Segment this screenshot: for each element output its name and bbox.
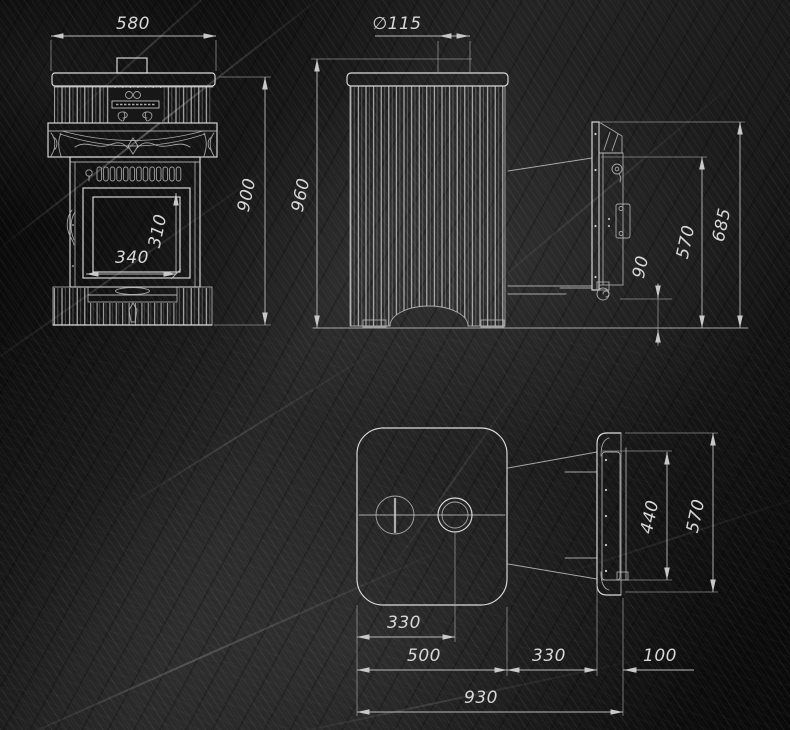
dim-chimney-diameter-label: ∅115 bbox=[372, 14, 421, 34]
dim-plan-body-depth-label: 500 bbox=[407, 646, 441, 666]
side-view: ∅115 960 685 570 bbox=[288, 14, 748, 346]
dim-front-width-label: 580 bbox=[116, 14, 150, 34]
dim-door-height: 310 bbox=[145, 193, 181, 279]
door-handle-knob bbox=[612, 164, 622, 174]
dim-opening-top-height: 570 bbox=[601, 157, 707, 328]
dim-plan-door-outer: 570 bbox=[625, 433, 718, 592]
front-air-vents bbox=[86, 167, 181, 181]
door-mount-flange bbox=[592, 122, 599, 290]
tunnel-top bbox=[508, 158, 592, 171]
dim-plan-total-depth-label: 930 bbox=[464, 688, 498, 708]
mantel-corner-left bbox=[51, 133, 61, 156]
dim-opening-bottom-height-label: 90 bbox=[629, 254, 653, 280]
plan-door-inner bbox=[602, 452, 620, 580]
plan-tunnel-top bbox=[508, 452, 597, 468]
door-top-glass bbox=[599, 122, 622, 153]
front-door-handle bbox=[67, 210, 75, 245]
dim-side-height-label: 960 bbox=[288, 176, 315, 213]
dim-plan-door-offset-label: 100 bbox=[643, 646, 677, 666]
front-top-plate bbox=[52, 73, 215, 86]
dim-plan-door-inner-label: 440 bbox=[637, 498, 664, 535]
technical-drawing: 580 900 340 310 bbox=[0, 0, 790, 730]
plan-door bbox=[597, 433, 628, 595]
dim-chimney-diameter: ∅115 bbox=[372, 14, 470, 72]
dim-door-width: 340 bbox=[86, 248, 176, 274]
mantel-corner-right bbox=[204, 133, 214, 156]
side-top-plate bbox=[347, 73, 508, 86]
plan-tunnel-bottom bbox=[508, 564, 597, 579]
dim-opening-bottom-height: 90 bbox=[620, 254, 672, 346]
dim-front-height: 900 bbox=[214, 77, 271, 325]
dim-plan-chimney-offset: 330 bbox=[357, 533, 455, 642]
dim-plan-total-depth: 930 bbox=[357, 688, 623, 712]
ash-dish bbox=[116, 288, 150, 295]
blueprint-canvas: 580 900 340 310 bbox=[0, 0, 790, 730]
front-view: 580 900 340 310 bbox=[48, 14, 271, 325]
front-mantel bbox=[48, 123, 217, 157]
dim-plan-tunnel-length-label: 330 bbox=[532, 646, 566, 666]
dim-opening-top-height-label: 570 bbox=[673, 223, 700, 260]
brand-emblem bbox=[110, 88, 162, 123]
brand-nameplate bbox=[112, 101, 159, 108]
dim-front-height-label: 900 bbox=[234, 176, 261, 213]
dim-door-height-label: 310 bbox=[145, 212, 172, 249]
dim-plan-chimney-offset-label: 330 bbox=[387, 613, 421, 633]
side-door bbox=[592, 122, 630, 300]
dim-door-top-height-label: 685 bbox=[709, 206, 736, 243]
dim-plan-depth-chain: 500 330 100 bbox=[357, 584, 694, 716]
dim-plan-door-inner: 440 bbox=[602, 451, 672, 580]
plan-body bbox=[357, 428, 507, 605]
dim-front-width: 580 bbox=[51, 14, 216, 71]
plan-door-face bbox=[597, 433, 621, 595]
front-chimney-stub bbox=[117, 58, 147, 73]
dim-door-width-label: 340 bbox=[115, 248, 149, 268]
dim-plan-door-outer-label: 570 bbox=[683, 497, 710, 534]
front-base bbox=[53, 287, 212, 325]
side-slats bbox=[350, 86, 505, 326]
plan-view: 440 570 330 bbox=[357, 428, 718, 716]
